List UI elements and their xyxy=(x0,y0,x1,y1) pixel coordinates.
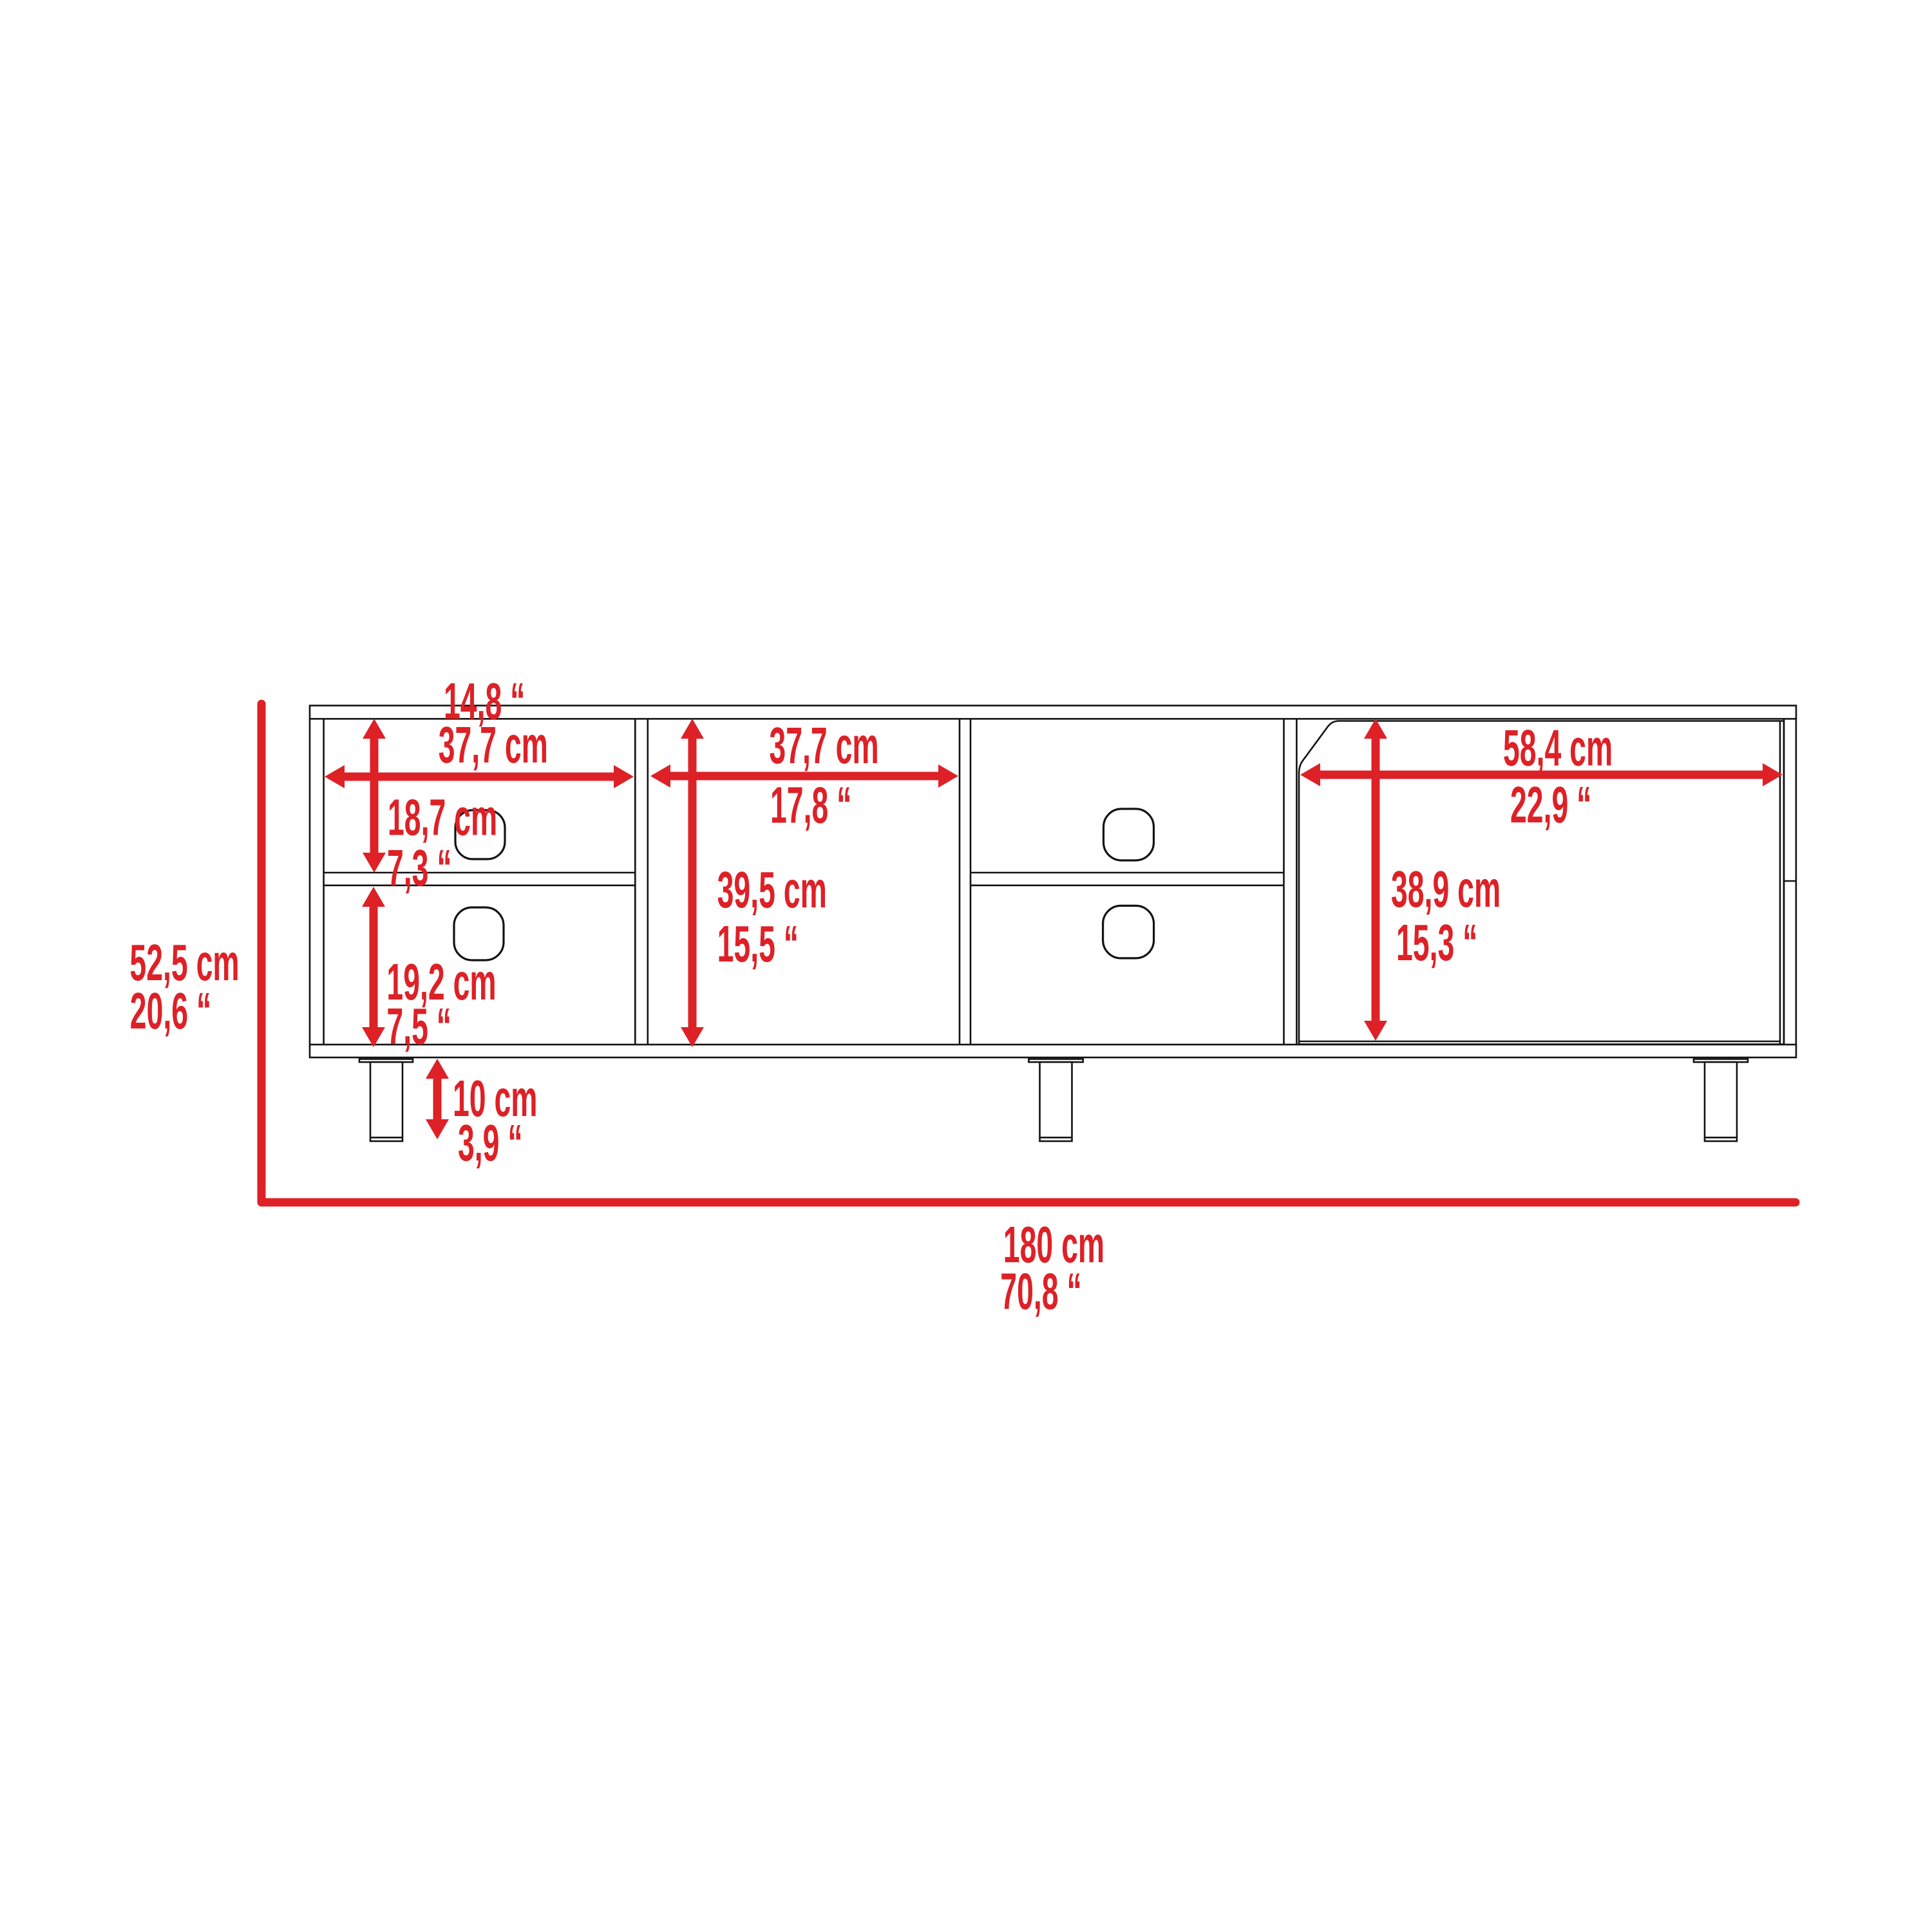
svg-text:37,7 cm: 37,7 cm xyxy=(439,716,548,773)
svg-text:7,5 “: 7,5 “ xyxy=(386,998,451,1055)
svg-text:3,9 “: 3,9 “ xyxy=(458,1114,523,1171)
svg-text:37,7 cm: 37,7 cm xyxy=(769,717,878,774)
svg-text:18,7 cm: 18,7 cm xyxy=(388,788,497,846)
svg-text:38,9 cm: 38,9 cm xyxy=(1391,860,1501,918)
svg-text:20,6 “: 20,6 “ xyxy=(130,982,211,1039)
svg-text:15,3 “: 15,3 “ xyxy=(1396,914,1477,971)
svg-text:70,8 “: 70,8 “ xyxy=(1000,1262,1081,1320)
svg-text:15,5 “: 15,5 “ xyxy=(717,915,799,972)
svg-text:22,9 “: 22,9 “ xyxy=(1510,776,1591,833)
svg-text:17,8 “: 17,8 “ xyxy=(770,776,851,833)
svg-text:58,4 cm: 58,4 cm xyxy=(1503,719,1613,777)
svg-text:7,3 “: 7,3 “ xyxy=(387,839,452,896)
svg-text:39,5 cm: 39,5 cm xyxy=(717,861,827,918)
